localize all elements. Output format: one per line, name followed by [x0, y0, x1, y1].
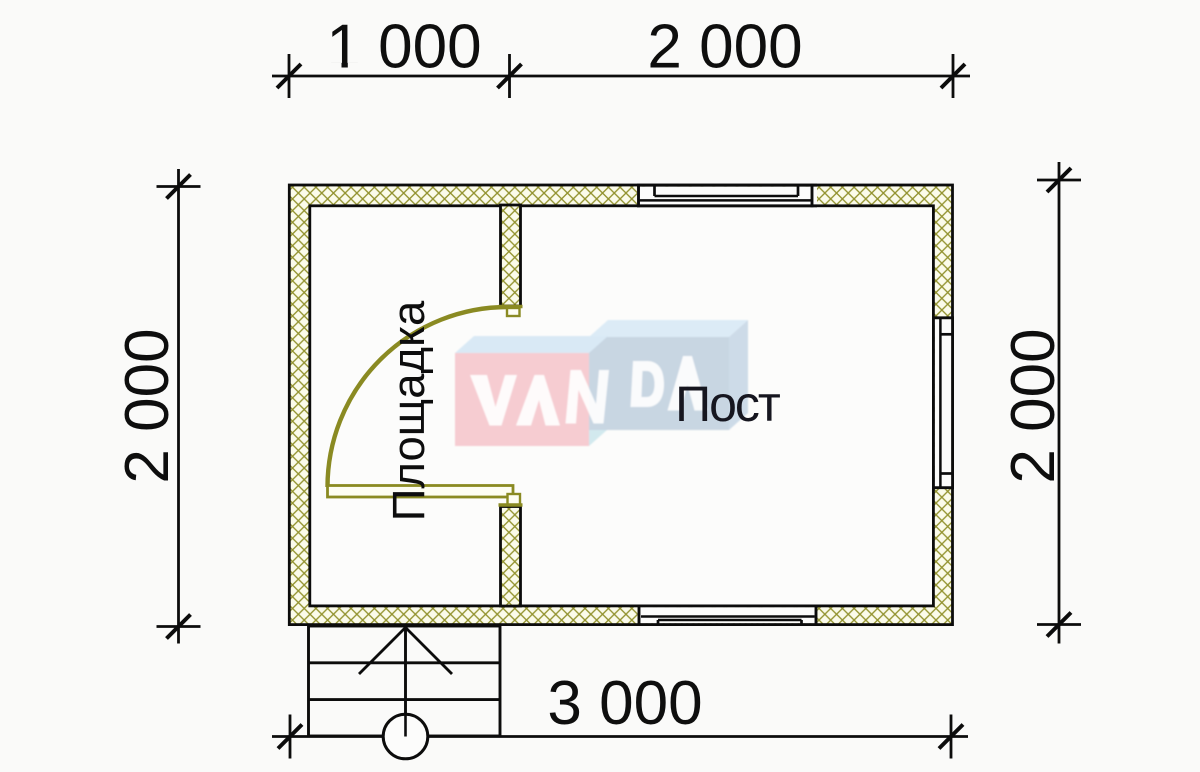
svg-text:1 000: 1 000 — [326, 13, 481, 82]
svg-text:Площадка: Площадка — [383, 300, 434, 521]
svg-text:2 000: 2 000 — [113, 328, 182, 483]
svg-text:2 000: 2 000 — [999, 328, 1068, 483]
svg-text:3 000: 3 000 — [547, 669, 702, 738]
svg-text:Пост: Пост — [675, 376, 781, 432]
svg-text:2 000: 2 000 — [647, 13, 802, 82]
